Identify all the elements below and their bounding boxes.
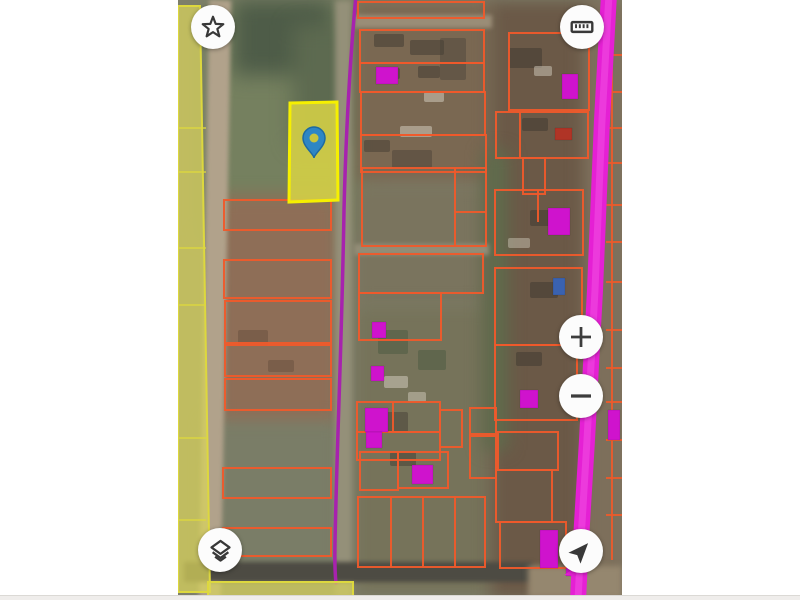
parcel-overlay[interactable] bbox=[178, 0, 622, 595]
cadastral-parcel[interactable] bbox=[440, 410, 462, 447]
ground-texture bbox=[516, 352, 542, 366]
cadastral-parcel[interactable] bbox=[358, 2, 484, 18]
layers-icon bbox=[207, 537, 234, 564]
building-magenta bbox=[562, 74, 578, 99]
cadastral-parcel[interactable] bbox=[362, 168, 486, 246]
plus-icon bbox=[566, 322, 596, 352]
ground-texture bbox=[392, 150, 432, 168]
building-red bbox=[555, 128, 572, 140]
app-window bbox=[0, 0, 800, 600]
cadastral-parcel[interactable] bbox=[470, 436, 496, 478]
minus-icon bbox=[566, 381, 596, 411]
ruler-icon bbox=[569, 14, 595, 40]
ground-texture bbox=[384, 376, 408, 388]
cadastral-parcel[interactable] bbox=[224, 260, 331, 298]
cadastral-parcel[interactable] bbox=[470, 408, 496, 434]
ground-texture bbox=[268, 360, 294, 372]
ground-texture bbox=[508, 238, 530, 248]
location-pin-hole bbox=[310, 134, 319, 143]
ground-texture bbox=[410, 40, 444, 55]
cadastral-parcel[interactable] bbox=[496, 470, 552, 522]
building-magenta bbox=[608, 410, 620, 440]
building-magenta bbox=[412, 465, 433, 484]
cadastral-parcel[interactable] bbox=[498, 432, 558, 470]
ground-texture bbox=[508, 48, 542, 68]
map-canvas[interactable] bbox=[178, 0, 622, 595]
cadastral-parcel[interactable] bbox=[523, 158, 545, 194]
ground-texture bbox=[440, 38, 466, 80]
favorites-button[interactable] bbox=[191, 5, 235, 49]
ground-texture bbox=[522, 118, 548, 131]
measure-button[interactable] bbox=[560, 5, 604, 49]
cadastral-parcel[interactable] bbox=[225, 379, 331, 410]
ground-texture bbox=[534, 66, 552, 76]
ground-texture bbox=[418, 350, 446, 370]
building-magenta bbox=[372, 322, 386, 338]
cadastral-parcel[interactable] bbox=[358, 497, 485, 567]
ground-texture bbox=[408, 392, 426, 402]
cadastral-parcel[interactable] bbox=[223, 468, 331, 498]
star-icon bbox=[200, 14, 226, 40]
ground-texture bbox=[374, 34, 404, 47]
navigation-arrow-icon bbox=[568, 538, 594, 564]
bottom-bar bbox=[0, 595, 800, 600]
ground-texture bbox=[364, 140, 390, 152]
building-magenta bbox=[520, 390, 538, 408]
yellow-zone-bottom bbox=[208, 582, 353, 595]
yellow-zone-left bbox=[178, 6, 210, 592]
layers-button[interactable] bbox=[198, 528, 242, 572]
building-magenta bbox=[365, 408, 388, 432]
building-magenta bbox=[540, 530, 558, 568]
zoom-out-button[interactable] bbox=[559, 374, 603, 418]
building-magenta bbox=[366, 432, 382, 448]
cadastral-parcel[interactable] bbox=[224, 200, 331, 230]
cadastral-parcel[interactable] bbox=[359, 254, 483, 293]
zoom-in-button[interactable] bbox=[559, 315, 603, 359]
ground-texture bbox=[424, 92, 444, 102]
building-magenta bbox=[376, 67, 398, 84]
ground-texture bbox=[418, 66, 440, 78]
locate-button[interactable] bbox=[559, 529, 603, 573]
building-magenta bbox=[371, 366, 384, 381]
building-magenta bbox=[548, 208, 570, 235]
boundary-line-purple bbox=[335, 0, 356, 583]
building-blue bbox=[553, 278, 565, 295]
